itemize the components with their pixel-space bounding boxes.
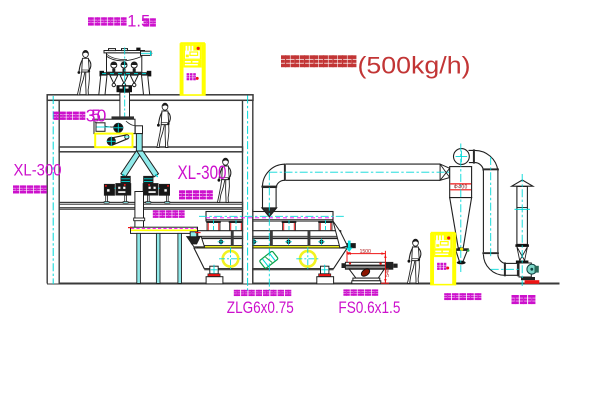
svg-text:FS0.6x1.5: FS0.6x1.5 xyxy=(338,298,400,317)
svg-text:(500kg/h): (500kg/h) xyxy=(358,53,471,80)
svg-text:ZLG6x0.75: ZLG6x0.75 xyxy=(227,298,294,317)
svg-text:1500: 1500 xyxy=(360,249,372,255)
svg-text:XL-300: XL-300 xyxy=(14,161,62,180)
svg-text:Φ400: Φ400 xyxy=(454,185,468,191)
svg-text:XL-300: XL-300 xyxy=(178,163,227,184)
svg-text:548: 548 xyxy=(385,268,391,277)
svg-text:350: 350 xyxy=(86,105,107,125)
